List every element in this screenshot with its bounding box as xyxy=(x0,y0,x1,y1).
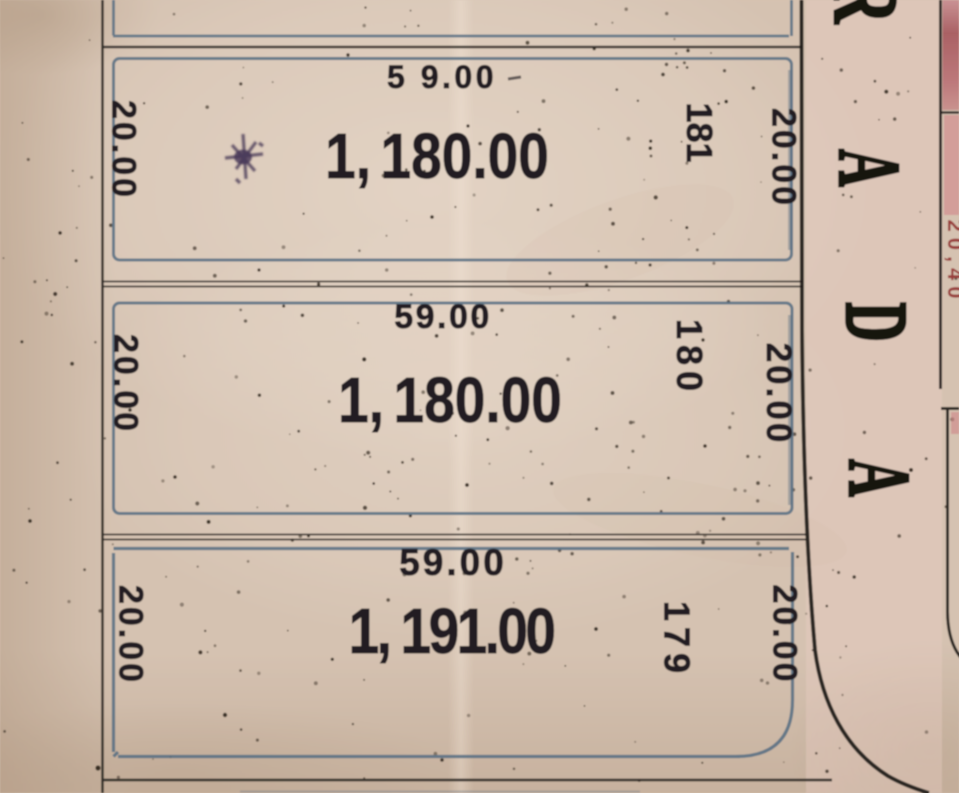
svg-text:A: A xyxy=(821,149,919,187)
svg-text:20.00: 20.00 xyxy=(105,100,143,200)
svg-text:20,40: 20,40 xyxy=(943,219,959,304)
svg-text:R: R xyxy=(814,0,916,25)
svg-text:179: 179 xyxy=(657,601,698,679)
svg-text:20.00: 20.00 xyxy=(112,585,150,685)
svg-text:59.00: 59.00 xyxy=(399,542,507,583)
svg-text:180: 180 xyxy=(669,319,710,397)
svg-text:1,191.00: 1,191.00 xyxy=(349,595,554,667)
svg-text:20.00: 20.00 xyxy=(765,108,803,208)
svg-text:20.00: 20.00 xyxy=(759,343,798,446)
svg-text:20.00: 20.00 xyxy=(107,334,145,434)
svg-text:D: D xyxy=(828,302,925,341)
svg-text:5 9.00: 5 9.00 xyxy=(387,59,497,95)
svg-text:59.00: 59.00 xyxy=(394,298,492,336)
svg-text:A: A xyxy=(831,459,929,497)
svg-text:20.00: 20.00 xyxy=(766,584,804,684)
svg-text:1,180.00: 1,180.00 xyxy=(325,120,549,192)
svg-text:1,180.00: 1,180.00 xyxy=(338,364,562,436)
svg-text:181: 181 xyxy=(679,102,720,162)
